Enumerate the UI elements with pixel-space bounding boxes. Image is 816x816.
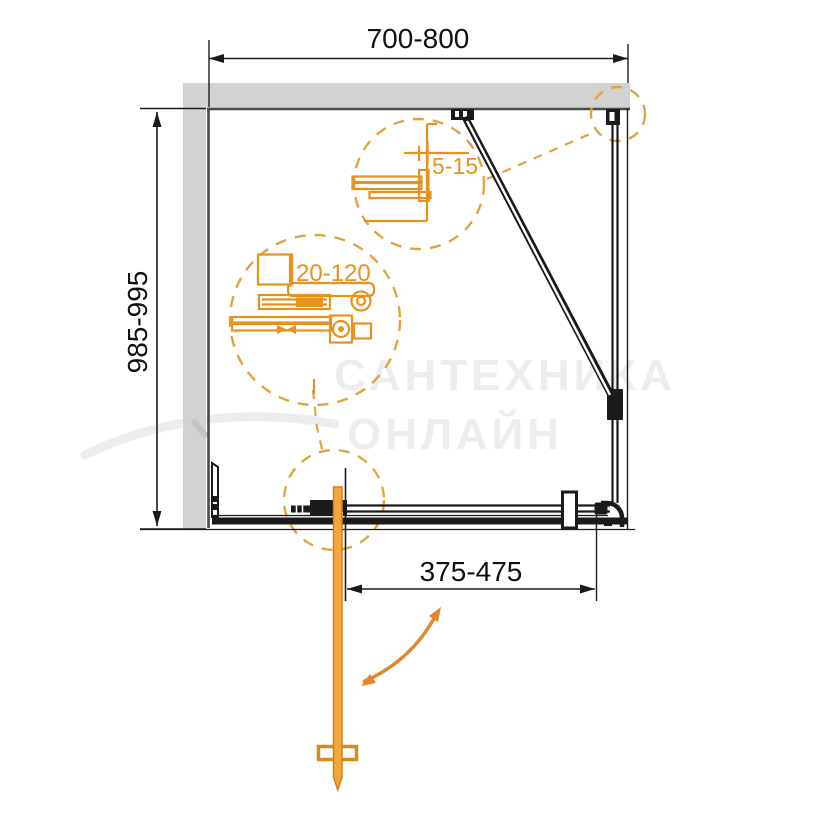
arrow-top (153, 112, 162, 127)
watermark-line2: ОНЛАЙН (347, 408, 563, 459)
glass-clamp (563, 492, 577, 528)
watermark-line1: САНТЕХНИКА (334, 351, 676, 400)
door-swing-arrow (361, 607, 441, 686)
arrow-left (347, 585, 362, 594)
technical-drawing-page: САНТЕХНИКА ОНЛАЙН 5-15 20-120 (0, 0, 816, 816)
arrow-left (209, 54, 224, 63)
swing-arrowhead-top (429, 607, 441, 622)
side-panel (606, 108, 628, 530)
handle-bar (334, 487, 343, 790)
watermark-swoosh (85, 417, 335, 455)
door-handle (319, 487, 357, 790)
bottom-rail (140, 463, 635, 530)
swing-arc (363, 613, 437, 682)
arrow-right (613, 54, 628, 63)
shower-enclosure-plan-drawing: САНТЕХНИКА ОНЛАЙН 5-15 20-120 (0, 0, 816, 816)
arrow-bottom (153, 511, 162, 526)
side-depth-label: 985-995 (122, 271, 153, 374)
door-width-label: 375-475 (420, 556, 523, 587)
gap-dimension-label: 5-15 (432, 153, 478, 179)
watermark: САНТЕХНИКА ОНЛАЙН (85, 351, 676, 459)
top-width-label: 700-800 (367, 23, 470, 54)
detail-circle-adjustment: 20-120 (230, 235, 400, 405)
detail-circle-gap: 5-15 (353, 119, 485, 249)
arrow-right (580, 585, 595, 594)
left-wall (183, 83, 206, 530)
door-edge-stub (291, 506, 310, 513)
top-wall (183, 83, 630, 108)
leader-gap-to-corner (487, 133, 592, 179)
